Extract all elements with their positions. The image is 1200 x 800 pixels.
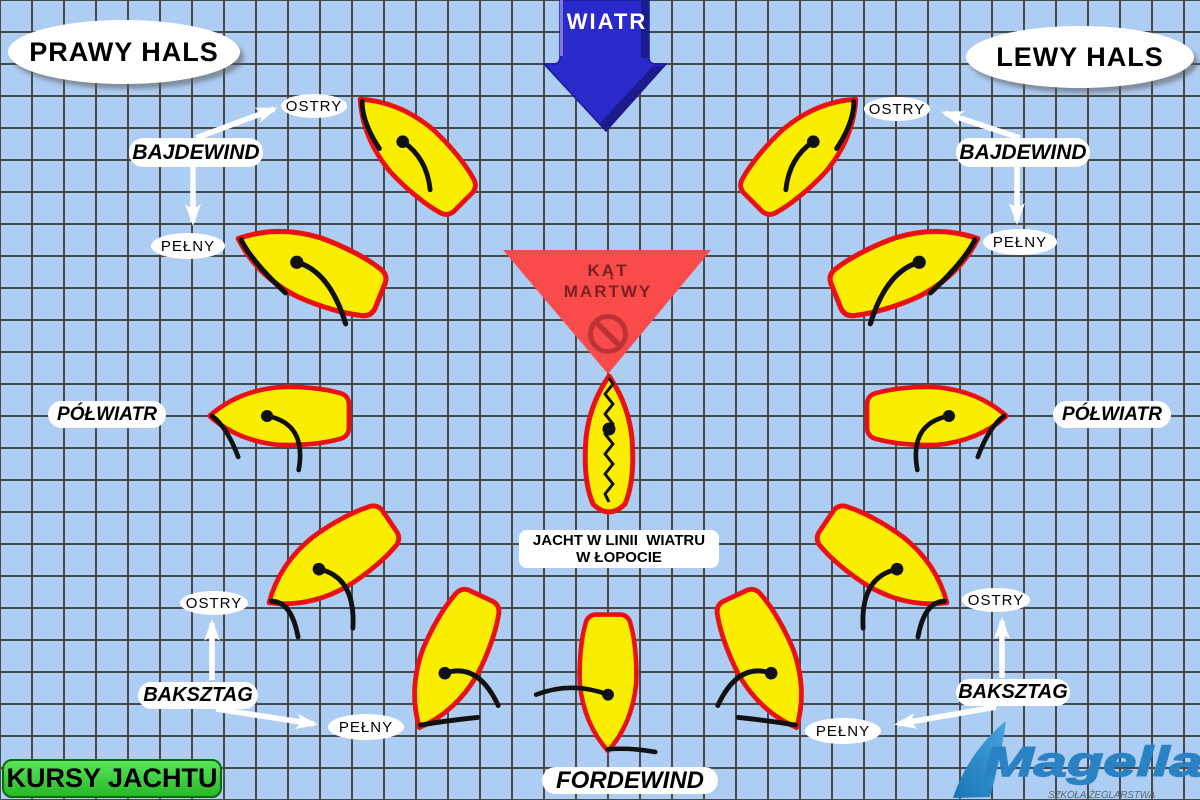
svg-text:Magellan: Magellan	[984, 738, 1200, 785]
svg-text:SZKOŁA ŻEGLARSTWA: SZKOŁA ŻEGLARSTWA	[1048, 789, 1156, 800]
